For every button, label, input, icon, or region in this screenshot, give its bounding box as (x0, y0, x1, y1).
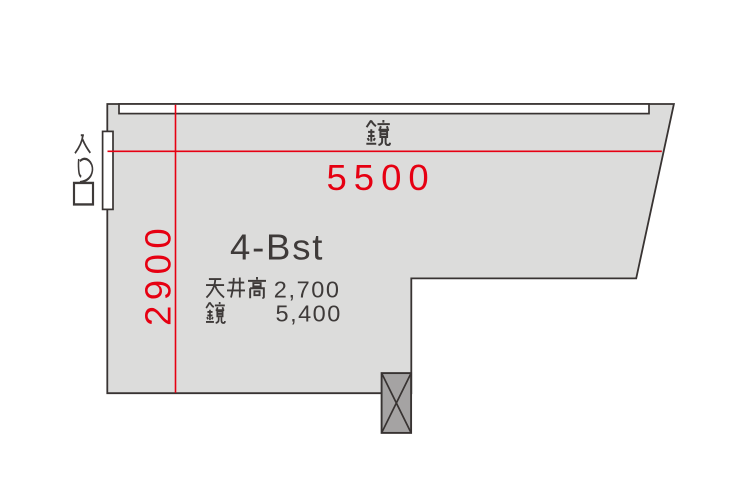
svg-text:5500: 5500 (327, 157, 436, 198)
svg-text:2900: 2900 (138, 223, 179, 326)
svg-text:4-Bst: 4-Bst (230, 227, 324, 268)
svg-text:2,700: 2,700 (274, 277, 341, 303)
svg-text:5,400: 5,400 (276, 301, 342, 327)
